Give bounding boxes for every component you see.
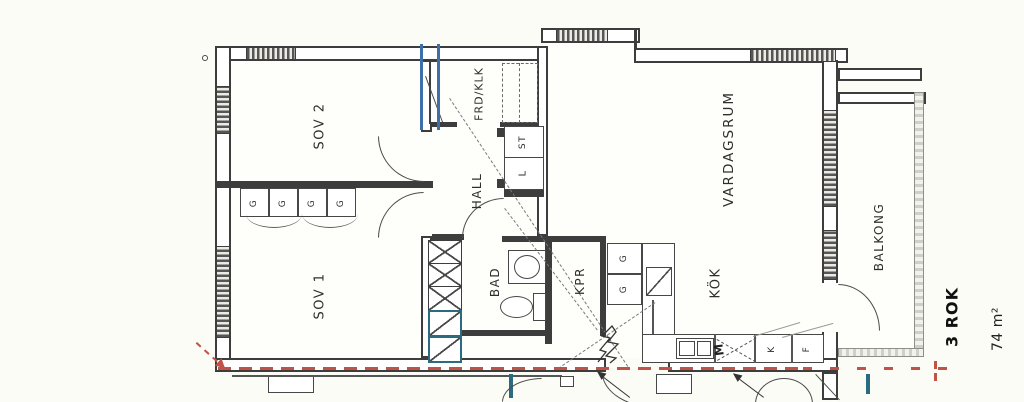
red-cross-mark (934, 373, 937, 381)
toilet-bowl (500, 296, 533, 318)
area-summary-label: 74 m² (990, 307, 1006, 351)
room-label-kok: KÖK (709, 267, 724, 298)
room-label-vardagsrum: VARDAGSRUM (721, 91, 737, 207)
wardrobe-label: G (336, 199, 346, 207)
wardrobe-label: G (278, 199, 288, 207)
handwritten-annotation (596, 322, 622, 364)
room-label-frd-klk: FRD/KLK (473, 67, 486, 121)
wall-stub-top-balcony (838, 68, 922, 81)
room-label-balkong: BALKONG (872, 203, 886, 272)
shaft-hatch-cell (428, 263, 462, 287)
toilet-tank (533, 293, 546, 321)
fragment-door-arc (502, 378, 542, 402)
frd-shelf-divider (519, 63, 520, 123)
kitchen-sink-basin-right (697, 341, 711, 356)
red-boundary-line (218, 367, 803, 370)
window-vardagsrum-top2 (750, 49, 836, 62)
fridge-label: K (767, 345, 777, 352)
teal-cabinet-cell (428, 310, 462, 337)
vardagsrum-notch (545, 42, 634, 62)
balcony-rail-right (914, 92, 924, 356)
wardrobe-label: G (307, 199, 317, 207)
freezer-label: F (802, 346, 812, 353)
wardrobe-label: G (619, 285, 629, 293)
wall-sov-divider (215, 181, 433, 188)
linen-closet-label: L (518, 169, 529, 176)
room-label-hall: HALL (470, 173, 484, 210)
fragment-box (268, 377, 314, 393)
room-label-sov1: SOV 1 (313, 272, 328, 319)
fragment-box (560, 376, 574, 387)
wardrobe-label: G (249, 199, 259, 207)
counter-divider (791, 334, 793, 363)
window-sov2-top (246, 47, 296, 60)
teal-plumbing-stub (866, 374, 870, 394)
wardrobe-label: G (619, 254, 629, 262)
shaft-hatch-cell (428, 240, 462, 264)
entry-door-arc (602, 373, 662, 402)
machine-label: M (711, 341, 727, 356)
fragment-door-arc (755, 378, 813, 402)
blue-wall-mark-2 (437, 44, 440, 130)
bathroom-sink-basin (514, 255, 540, 279)
kitchen-sink-basin-left (679, 341, 695, 356)
layout-summary-label: 3 ROK (943, 287, 962, 347)
window-sov2-left (216, 86, 230, 134)
wall-bottom-west (215, 358, 606, 372)
blue-wall-mark-1 (420, 44, 423, 130)
wall-frd-bottom-left (432, 122, 457, 127)
stove (646, 267, 672, 296)
shaft-hatch-cell (428, 286, 462, 311)
wall-kpr-top (545, 236, 606, 242)
window-vardagsrum-top1 (556, 29, 608, 42)
frd-shelf-dashed (502, 63, 538, 123)
window-vardagsrum-right1 (823, 110, 837, 207)
room-label-sov2: SOV 2 (313, 102, 328, 149)
cleaning-closet-label: ST (518, 135, 528, 149)
balcony-top-edge (838, 92, 926, 104)
window-vardagsrum-right2 (823, 230, 837, 280)
doorbell-mark (202, 55, 208, 61)
closet-mount-top (497, 128, 504, 137)
wall-bad-bottom (460, 330, 552, 336)
red-boundary-line-ext (803, 367, 948, 370)
window-sov1-left (216, 246, 230, 338)
teal-cabinet-cell (428, 336, 462, 363)
balcony-rail-bottom (838, 348, 924, 357)
floor-plan: SOV 2 SOV 1 FRD/KLK HALL BAD KPR VARDAGS… (0, 0, 1024, 402)
room-label-kpr: KPR (573, 267, 587, 295)
room-label-bad: BAD (488, 267, 502, 297)
